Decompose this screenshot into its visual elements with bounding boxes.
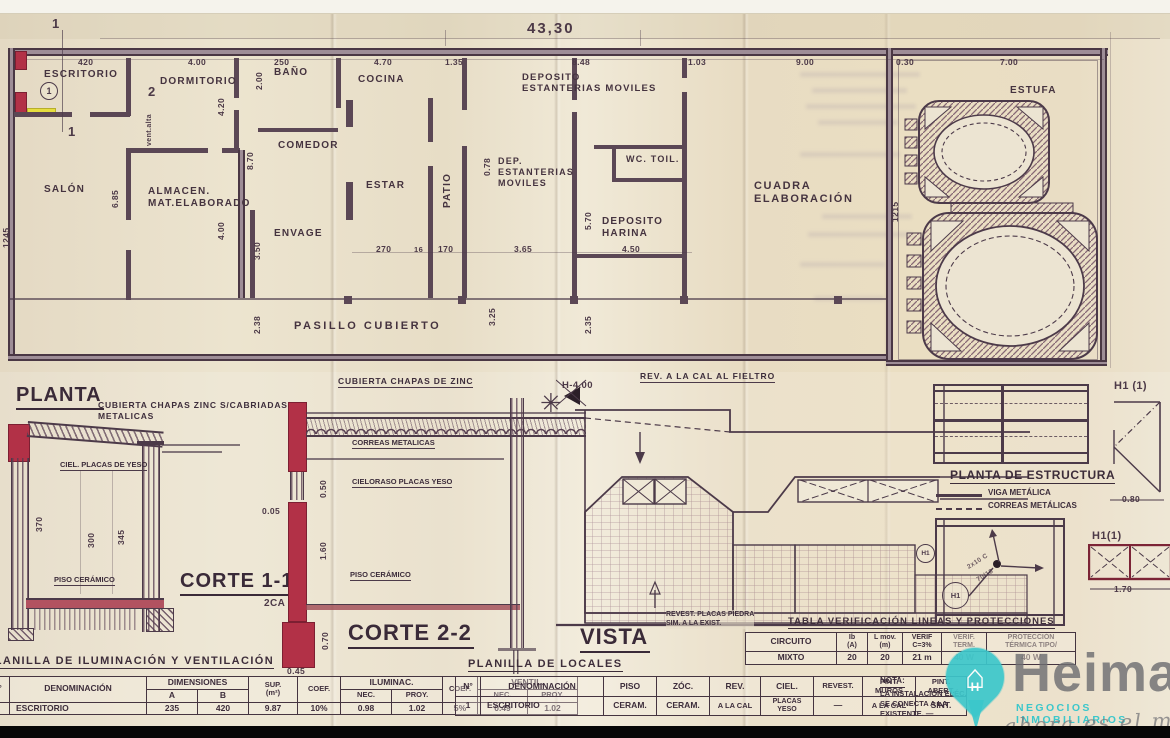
dimension-label: 0.80 xyxy=(1122,494,1140,504)
zinc-roof-band xyxy=(306,417,586,437)
wall-segment xyxy=(238,150,245,298)
heima-logo: ⌂ H Heima NEGOCIOS INMOBILIARIOS ahora e… xyxy=(940,644,1170,738)
legend-correas-label: CORREAS METÁLICAS xyxy=(988,501,1077,512)
verif-table-title: TABLA VERIFICACIÓN LINEAS Y PROTECCIONES xyxy=(788,616,1055,629)
room-label-wc: WC. TOIL. xyxy=(626,154,680,165)
dimension-label: 8.48 xyxy=(572,57,590,67)
highlighted-wall xyxy=(15,51,27,70)
section-cut-line xyxy=(62,30,63,132)
wall-segment xyxy=(14,112,72,117)
beam-line xyxy=(943,386,945,462)
dimension-label: 4.50 xyxy=(622,244,640,254)
wall-segment xyxy=(126,250,131,300)
dimension-label: 3.50 xyxy=(252,242,262,260)
window-jamb xyxy=(290,472,304,500)
h1-top-detail xyxy=(1108,392,1170,510)
wall-segment xyxy=(428,98,433,142)
pier xyxy=(834,296,842,304)
wall-segment xyxy=(126,58,131,116)
dimension-label: 9.00 xyxy=(796,57,814,67)
section-wall xyxy=(510,398,524,648)
wall-segment xyxy=(90,112,130,117)
dimension-label: 2CA xyxy=(264,598,285,609)
wall-segment xyxy=(346,100,353,127)
beam-line xyxy=(935,419,1087,422)
room-label-estar: ESTAR xyxy=(366,180,405,192)
wall-segment xyxy=(8,48,1108,56)
floor-slab xyxy=(306,604,520,610)
dimension-tick xyxy=(640,30,641,46)
corte2-title: CORTE 2-2 xyxy=(348,620,474,649)
dimension-label: 1245 xyxy=(1,227,11,248)
wall-segment xyxy=(346,182,353,220)
room-label-cuadra: CUADRA ELABORACIÓN xyxy=(754,180,854,206)
wall-segment xyxy=(612,149,616,181)
wall-segment xyxy=(258,128,338,132)
legend-viga-label: VIGA METÁLICA xyxy=(988,488,1051,499)
dimension-label: 0.45 xyxy=(287,666,305,676)
oven-large xyxy=(907,213,1097,359)
pier xyxy=(570,296,578,304)
wall-segment xyxy=(462,146,467,298)
dimension-label: 3.25 xyxy=(487,308,497,326)
room-label-envage: ENVAGE xyxy=(274,228,323,240)
oven-small xyxy=(905,101,1049,203)
wall-segment xyxy=(428,166,433,298)
dimension-label: 6.85 xyxy=(110,190,120,208)
footing xyxy=(146,608,174,632)
room-label-patio: PATIO xyxy=(442,173,454,208)
structure-grid xyxy=(933,384,1089,464)
room-label-dep-estanterias: DEP. ESTANTERIAS MOVILES xyxy=(498,156,574,188)
section-mark: 2 xyxy=(148,84,156,99)
column-base xyxy=(282,622,315,668)
wall-segment xyxy=(336,58,341,108)
locales-table-title: PLANILLA DE LOCALES xyxy=(468,658,623,672)
edge-line xyxy=(1110,32,1111,368)
dimension-label: 4.00 xyxy=(216,222,226,240)
piso-label: PISO CERÁMICO xyxy=(350,570,411,581)
wall-segment xyxy=(234,110,239,152)
plan-title: PLANTA xyxy=(16,384,104,410)
section-column xyxy=(288,502,307,622)
correa-dashed-line xyxy=(935,403,1087,404)
wall-segment xyxy=(682,92,687,298)
reference-circle: 1 xyxy=(40,82,58,100)
dimension-label: 0.05 xyxy=(262,506,280,516)
dimension-label: 2.00 xyxy=(254,72,264,90)
fold-crease xyxy=(330,14,337,726)
nota-label: NOTA: xyxy=(880,676,905,688)
pier xyxy=(458,296,466,304)
dimension-label: 270 xyxy=(376,244,391,254)
wall-segment xyxy=(126,148,208,153)
room-label-deposito-harina: DEPOSITO HARINA xyxy=(602,216,663,240)
scan-artifact xyxy=(800,152,900,157)
dimension-label: 170 xyxy=(438,244,453,254)
wall-segment xyxy=(594,145,684,149)
beam-line xyxy=(935,452,1087,454)
scan-black-bar xyxy=(0,726,1170,738)
ilum-table-title: PLANILLA DE ILUMINACIÓN Y VENTILACIÓN xyxy=(0,655,274,669)
vista-title: VISTA xyxy=(580,624,650,653)
room-label-salon: SALÓN xyxy=(44,184,85,196)
wall-segment xyxy=(612,178,686,182)
dimension-label: 43,30 xyxy=(527,20,575,37)
room-label-deposito-estanterias: DEPOSITO ESTANTERIAS MOVILES xyxy=(522,72,657,95)
corte1-title: CORTE 1-1 xyxy=(180,570,295,596)
legend-viga-line xyxy=(936,494,982,497)
h1-marker: H1 xyxy=(916,544,935,563)
estructura-title: PLANTA DE ESTRUCTURA xyxy=(950,468,1115,484)
room-label-comedor: COMEDOR xyxy=(278,140,339,152)
column-cap xyxy=(137,441,164,445)
h1-top-label: H1 (1) xyxy=(1114,380,1147,392)
h1-bottom-label: H1(1) xyxy=(1092,530,1122,542)
house-h-letter: H xyxy=(946,648,1004,706)
footing xyxy=(8,628,34,641)
pier xyxy=(680,296,688,304)
dimension-line xyxy=(100,38,1160,39)
wall-segment xyxy=(8,354,890,361)
dimension-label: 1.35 xyxy=(445,57,463,67)
room-label-escritorio: ESCRITORIO xyxy=(44,69,118,81)
dimension-label: 1.03 xyxy=(688,57,706,67)
heima-wordmark: Heima xyxy=(1012,642,1170,704)
corte1-cubierta-label: CUBIERTA CHAPAS ZINC S/CABRIADAS METALIC… xyxy=(98,400,288,423)
cieloraso-label: CIELORASO PLACAS YESO xyxy=(352,477,452,488)
eave-line xyxy=(162,444,240,446)
dimension-label: 1.60 xyxy=(318,542,328,560)
foundation xyxy=(34,608,136,630)
dimension-label: 1.70 xyxy=(1114,584,1132,594)
pier xyxy=(344,296,352,304)
room-label-dormitorio: DORMITORIO xyxy=(160,76,237,88)
wall-segment xyxy=(575,254,683,258)
section-mark: 1 xyxy=(52,16,60,31)
dimension-label: 2.38 xyxy=(252,316,262,334)
annotation: vent.alta xyxy=(146,114,153,146)
ceiling-line xyxy=(306,458,504,460)
correas-label: CORREAS METALICAS xyxy=(352,438,435,449)
room-label-cocina: COCINA xyxy=(358,74,405,86)
legend-correas-line xyxy=(936,508,982,510)
dimension-label: 0.50 xyxy=(318,480,328,498)
wall-segment xyxy=(682,58,687,78)
top-white-strip xyxy=(0,0,1170,14)
beam-line xyxy=(1001,386,1004,462)
dimension-label: 420 xyxy=(78,57,93,67)
dimension-label: 16 xyxy=(414,245,423,254)
room-label-pasillo: PASILLO CUBIERTO xyxy=(294,320,441,333)
dimension-tick xyxy=(445,30,446,46)
horno-ovens-drawing xyxy=(893,85,1108,365)
wall-segment xyxy=(126,150,131,220)
dimension-label: 0.78 xyxy=(482,158,492,176)
dimension-label: 2.35 xyxy=(583,316,593,334)
paper-shade xyxy=(0,13,1170,39)
h1-marker: H1 xyxy=(942,582,969,609)
scan-artifact xyxy=(800,262,885,267)
floor-label: PISO CERÁMICO xyxy=(54,575,115,586)
wall-segment xyxy=(8,48,15,360)
blueprint-scan: 43,30 1 1 2 1 420 4.00 250 4. xyxy=(0,0,1170,738)
dimension-label: 4.20 xyxy=(216,98,226,116)
dimension-label: 3.65 xyxy=(514,244,532,254)
corte2-cubierta-label: CUBIERTA CHAPAS DE ZINC xyxy=(338,376,473,388)
dimension-label: 4.70 xyxy=(374,57,392,67)
beam-line xyxy=(935,390,1087,392)
section-mark: 1 xyxy=(68,124,76,139)
eave-line xyxy=(162,451,222,453)
room-label-bano: BAÑO xyxy=(274,67,308,79)
room-label-almacen: ALMACEN. MAT.ELABORADO xyxy=(148,186,251,210)
dimension-label: 4.00 xyxy=(188,57,206,67)
dimension-label: 370 xyxy=(34,517,44,532)
revest-label: REVEST. PLACAS PIEDRA SIM. A LA EXIST. xyxy=(666,610,754,629)
dimension-label: 250 xyxy=(274,57,289,67)
dimension-label: 300 xyxy=(86,533,96,548)
dimension-label: 0.70 xyxy=(320,632,330,650)
ceiling-label: CIEL. PLACAS DE YESO xyxy=(60,460,147,471)
dimension-label: 345 xyxy=(116,530,126,545)
pasillo-line xyxy=(8,298,888,300)
dimension-label: 5.70 xyxy=(583,212,593,230)
section-column xyxy=(288,402,307,472)
wall-segment xyxy=(572,112,577,298)
dimension-label: 8.70 xyxy=(245,152,255,170)
correa-dashed-line xyxy=(935,436,1087,437)
